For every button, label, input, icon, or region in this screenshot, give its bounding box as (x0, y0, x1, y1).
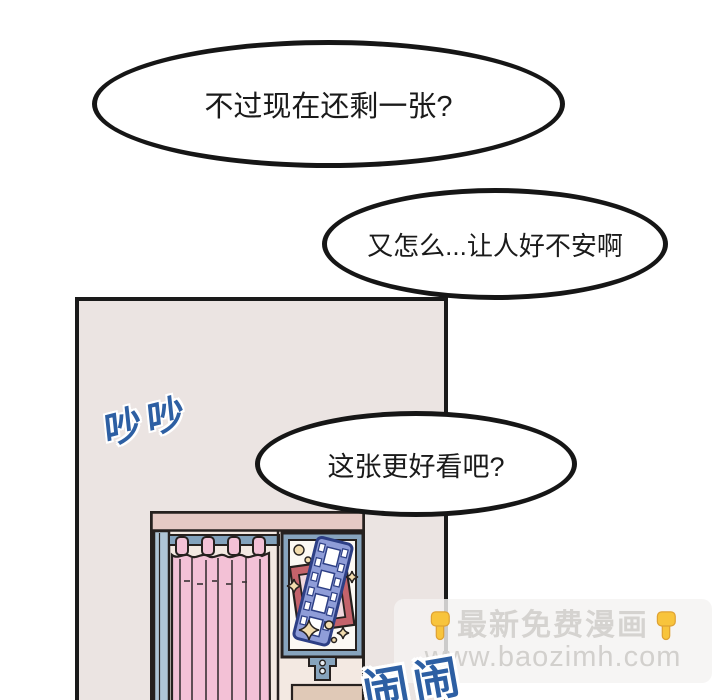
booth-slot-panel (292, 685, 363, 700)
watermark-url: www.baozimh.com (425, 642, 682, 672)
photo-booth-illustration (150, 511, 365, 700)
speech-bubble-1: 不过现在还剩一张? (92, 40, 565, 168)
watermark-line1: 最新免费漫画 (427, 610, 679, 642)
speech-bubble-3-text: 这张更好看吧? (327, 445, 504, 484)
speech-bubble-2-text: 又怎么...让人好不安啊 (367, 226, 623, 263)
pointing-down-hand-icon (427, 610, 453, 642)
film-poster-sign (282, 533, 363, 657)
booth-top-bar (152, 513, 364, 531)
speech-bubble-1-text: 不过现在还剩一张? (204, 83, 452, 125)
curtain (172, 553, 270, 700)
comic-page: 不过现在还剩一张? 又怎么...让人好不安啊 吵吵 这张更好看吧? (0, 0, 720, 700)
pointing-down-hand-icon (653, 610, 679, 642)
watermark-title: 最新免费漫画 (457, 610, 649, 642)
speech-bubble-2: 又怎么...让人好不安啊 (322, 188, 668, 300)
booth-left-pole (154, 531, 169, 700)
speech-bubble-3: 这张更好看吧? (255, 411, 577, 517)
